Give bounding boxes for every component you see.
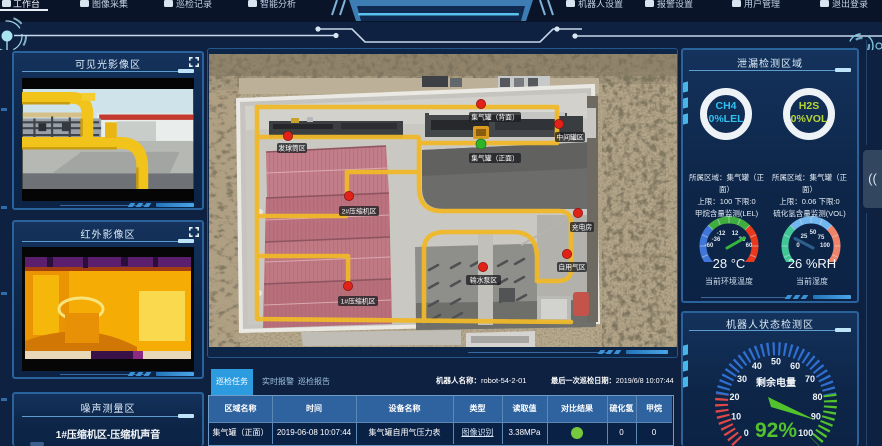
svg-text:0: 0 (796, 243, 800, 249)
svg-text:80: 80 (812, 392, 822, 402)
svg-text:60: 60 (790, 361, 800, 371)
svg-text:100: 100 (820, 243, 831, 249)
svg-text:1#压缩机区: 1#压缩机区 (340, 297, 375, 306)
svg-text:集气罐（背面）: 集气罐（背面） (471, 113, 519, 122)
svg-text:自用气区: 自用气区 (558, 263, 585, 272)
svg-text:60: 60 (746, 243, 753, 249)
svg-text:50: 50 (771, 357, 781, 367)
svg-text:集气罐（正面）: 集气罐（正面） (471, 154, 519, 163)
svg-text:25: 25 (801, 234, 808, 240)
svg-text:发球筒区: 发球筒区 (278, 144, 305, 153)
svg-text:中间罐区: 中间罐区 (556, 133, 583, 142)
svg-text:92%: 92% (755, 419, 797, 442)
svg-text:100: 100 (798, 428, 813, 438)
svg-text:90: 90 (811, 412, 821, 422)
svg-text:75: 75 (818, 235, 825, 241)
svg-text:20: 20 (729, 392, 739, 402)
svg-text:0: 0 (744, 428, 749, 438)
svg-text:剩余电量: 剩余电量 (756, 376, 796, 389)
svg-text:50: 50 (810, 230, 817, 236)
svg-text:-60: -60 (705, 243, 714, 249)
svg-text:输水泵区: 输水泵区 (469, 276, 496, 285)
svg-text:充电房: 充电房 (571, 223, 592, 232)
svg-text:40: 40 (752, 361, 762, 371)
svg-text:2#压缩机区: 2#压缩机区 (341, 207, 376, 216)
svg-text:10: 10 (731, 412, 741, 422)
svg-text:30: 30 (737, 374, 747, 384)
svg-text:70: 70 (805, 374, 815, 384)
